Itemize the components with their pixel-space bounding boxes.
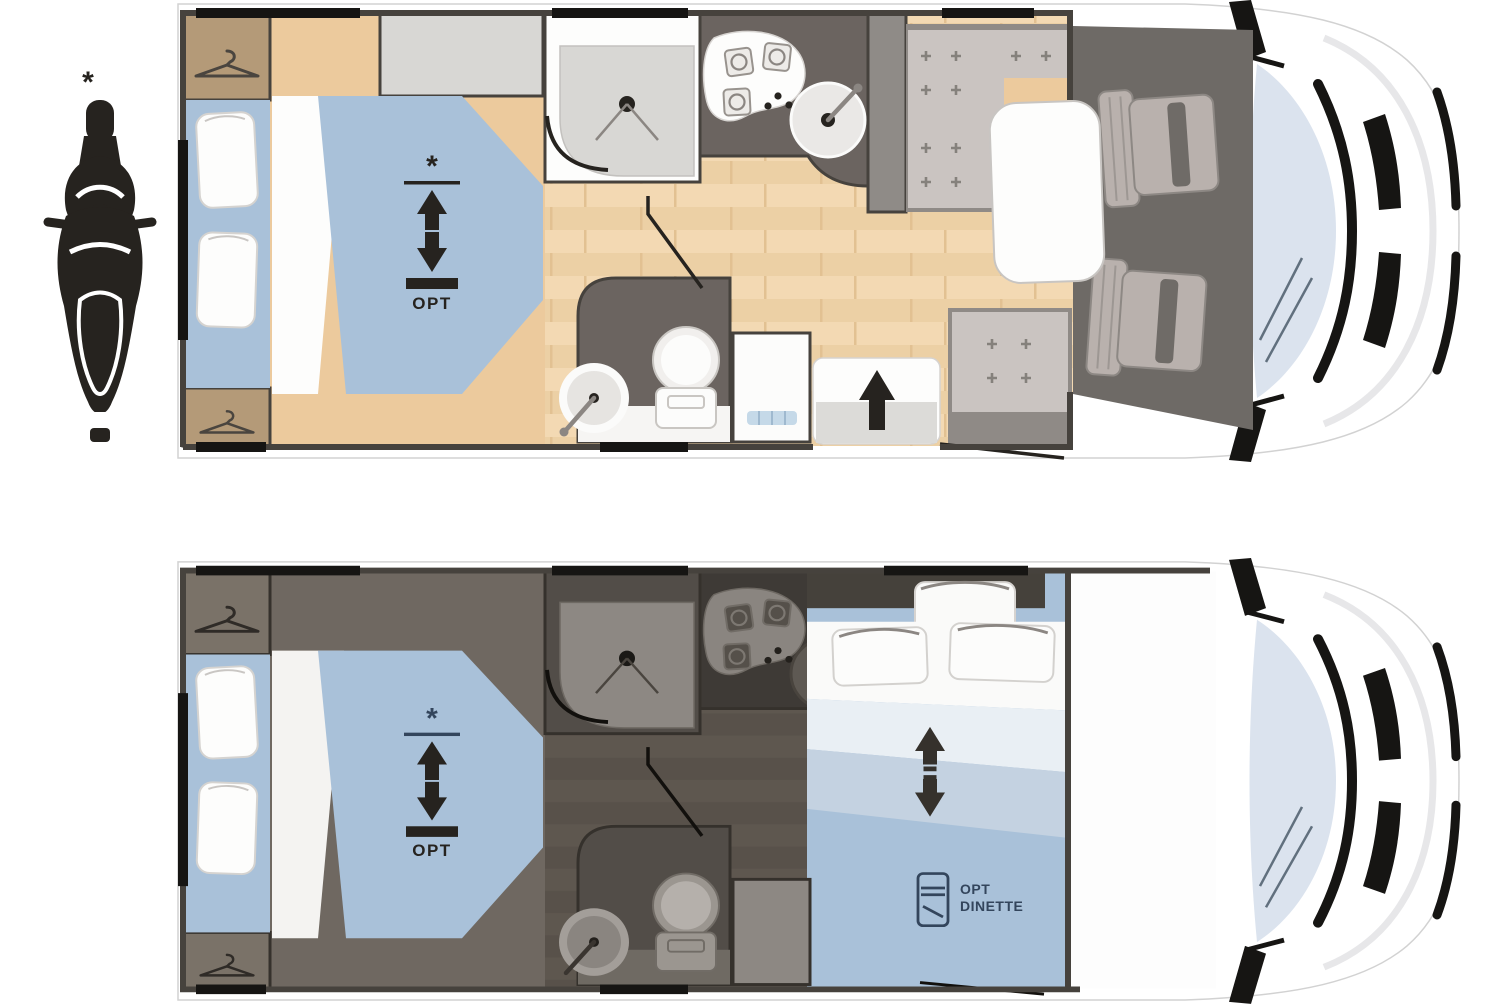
motorhome-floorplans: * * OPT [0,0,1500,1005]
toilet-icon [653,874,719,971]
overhead-locker [380,14,543,96]
opt-dinette-label: DINETTE [960,899,1023,914]
scooter-front-wheel [86,100,114,142]
day-floorplan: * OPT [178,0,1459,462]
wardrobe [183,932,270,988]
shower-room [545,572,700,734]
pillow [196,112,259,209]
pillow [196,666,259,760]
dinette-bed: OPT DINETTE [807,572,1068,995]
opt-dinette-label: OPT [960,882,990,897]
shower-room [545,14,700,182]
wardrobe [183,572,270,655]
cab-seat [1086,258,1208,382]
bed-asterisk: * [426,150,438,183]
wardrobe [183,388,270,446]
wardrobe [183,14,270,100]
floorplan-page: * * OPT [0,0,1500,1005]
bathroom [559,826,730,984]
toilet-icon [653,327,719,428]
washbasin-icon [559,908,629,976]
pillow [832,627,928,686]
pillow [196,232,257,328]
scooter-icon: * [48,66,152,442]
cab-seat [1098,84,1220,208]
opt-label: OPT [412,841,451,860]
overcab-bed-cover [1068,572,1216,989]
opt-label: OPT [412,294,451,313]
table [989,100,1105,284]
night-floorplan: * OPT [178,558,1459,1004]
bathroom [559,278,730,442]
dinette-bench [952,312,1068,412]
pillow [196,782,257,875]
heater-cabinet [733,879,810,984]
bed-asterisk: * [426,702,438,734]
dinette-bench [1004,30,1068,78]
fridge-cabinet [868,14,906,212]
scooter-asterisk: * [82,66,94,99]
heater-cabinet [733,333,810,442]
pillow [949,623,1055,682]
